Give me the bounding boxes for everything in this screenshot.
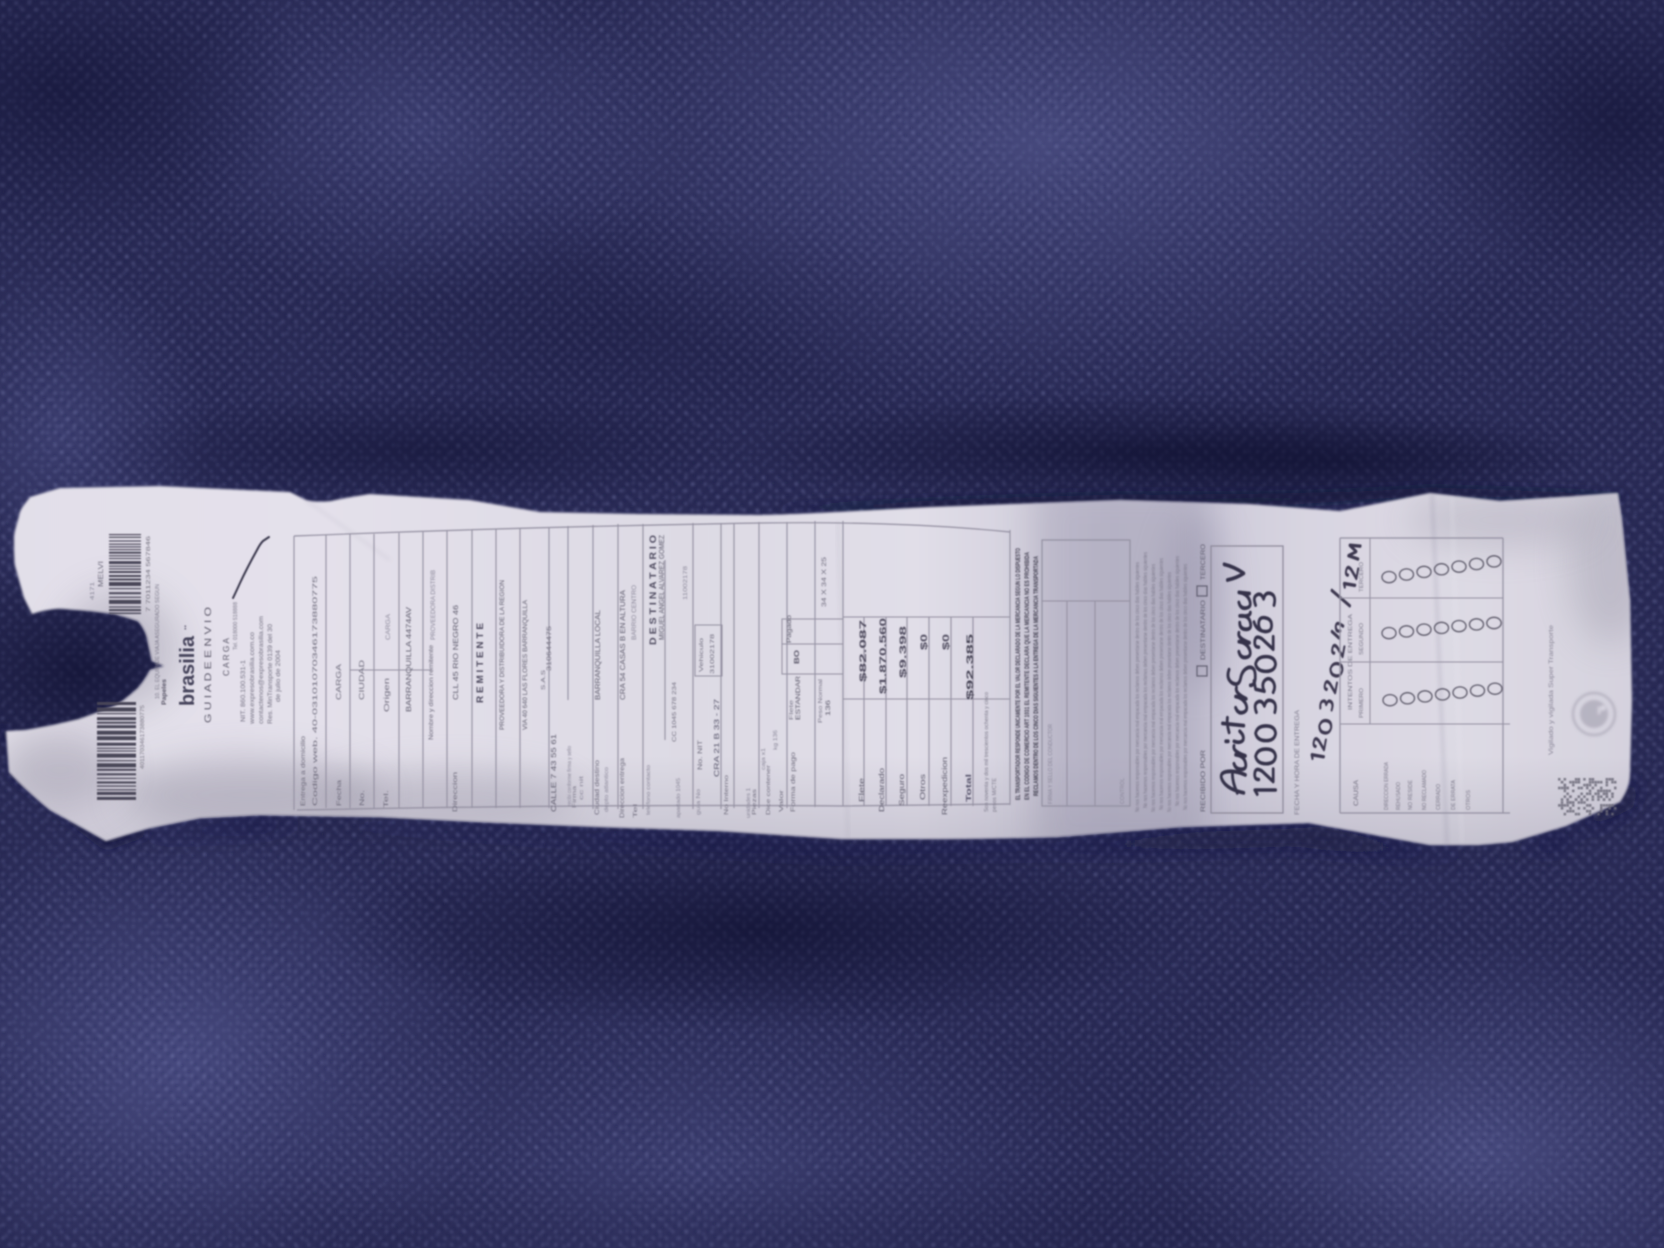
svg-text:Tel: Tel bbox=[633, 804, 639, 818]
svg-text:Son noventa y dos mil trescien: Son noventa y dos mil trescientos ochent… bbox=[984, 692, 990, 812]
svg-text:BARRIO CENTRO: BARRIO CENTRO bbox=[632, 585, 638, 640]
svg-text:CALLE 7 43 55 61: CALLE 7 43 55 61 bbox=[551, 734, 558, 812]
svg-text:11002178: 11002178 bbox=[683, 566, 689, 600]
svg-text:apartado 1045: apartado 1045 bbox=[676, 778, 682, 818]
svg-text:Papeles: Papeles bbox=[161, 679, 168, 705]
svg-text:Piezas: Piezas bbox=[752, 789, 758, 815]
svg-text:NO RECLAMADO: NO RECLAMADO bbox=[1422, 770, 1428, 810]
svg-text:Flete: Flete bbox=[789, 700, 795, 720]
svg-text:Declarado: Declarado bbox=[879, 768, 886, 812]
svg-text:No nos hacemos responsables po: No nos hacemos responsables por mercanci… bbox=[1143, 552, 1149, 808]
svg-text:BARRANQUILLA LOCAL: BARRANQUILLA LOCAL bbox=[595, 610, 602, 700]
svg-text:No Interno: No Interno bbox=[724, 775, 730, 815]
svg-text:No nos hacemos responsables po: No nos hacemos responsables por mercanci… bbox=[1175, 556, 1181, 806]
svg-text:depto atlantico: depto atlantico bbox=[604, 767, 610, 812]
svg-text:136: 136 bbox=[826, 699, 832, 716]
svg-text:No nos hacemos responsables po: No nos hacemos responsables por mercanci… bbox=[1151, 564, 1157, 812]
svg-text:contactenos@expresobrasilia.co: contactenos@expresobrasilia.com bbox=[259, 616, 265, 724]
svg-text:Vigilado y vigilada Super Tran: Vigilado y vigilada Super Transporte bbox=[1549, 624, 1555, 755]
svg-text:Peso Normal: Peso Normal bbox=[818, 679, 824, 723]
svg-text:CAUSA: CAUSA bbox=[1354, 780, 1360, 806]
svg-text:MELVI: MELVI bbox=[98, 561, 105, 587]
svg-text:310644475: 310644475 bbox=[547, 625, 553, 671]
svg-text:$9.398: $9.398 bbox=[898, 626, 908, 678]
svg-text:Ciudad destino: Ciudad destino bbox=[595, 759, 601, 815]
svg-text:kg 136: kg 136 bbox=[773, 730, 779, 750]
svg-text:FIRMA Y SELLO DEL CONDUCTOR: FIRMA Y SELLO DEL CONDUCTOR bbox=[1048, 724, 1054, 804]
svg-text:Otros: Otros bbox=[920, 773, 927, 800]
svg-text:$0: $0 bbox=[919, 634, 929, 650]
svg-text:No nos hacemos responsables po: No nos hacemos responsables por mercanci… bbox=[1167, 572, 1173, 812]
svg-text:Codigo web. 40-031010703461738: Codigo web. 40-03101070346173880775 bbox=[312, 575, 319, 806]
svg-text:REHUSADO: REHUSADO bbox=[1396, 782, 1402, 810]
svg-text:CLL 45 RIO NEGRO 46: CLL 45 RIO NEGRO 46 bbox=[453, 605, 460, 700]
svg-text:R E M I T E N T E: R E M I T E N T E bbox=[475, 623, 485, 703]
svg-text:CARGA: CARGA bbox=[386, 614, 392, 640]
svg-text:de julio de 2004: de julio de 2004 bbox=[276, 649, 282, 702]
svg-text:Direccion: Direccion bbox=[453, 772, 459, 812]
svg-text:7 7011234 567846: 7 7011234 567846 bbox=[146, 536, 152, 612]
svg-text:brasilia: brasilia bbox=[177, 635, 199, 706]
svg-text:INTENTOS DE ENTREGA: INTENTOS DE ENTREGA bbox=[1348, 614, 1354, 710]
svg-text:www.expresobrasilia.com.co: www.expresobrasilia.com.co bbox=[250, 631, 256, 725]
svg-text:RECIBIDO POR: RECIBIDO POR bbox=[1200, 750, 1207, 812]
svg-text:CARGA: CARGA bbox=[336, 664, 343, 700]
svg-text:BARRANQUILLA 4474AV: BARRANQUILLA 4474AV bbox=[404, 607, 413, 712]
svg-text:No nos hacemos responsables po: No nos hacemos responsables por mercanci… bbox=[1135, 562, 1141, 812]
svg-text:$1.870.560: $1.870.560 bbox=[878, 618, 888, 694]
svg-text:No. NIT: No. NIT bbox=[698, 740, 704, 770]
svg-text:Res. MinTransporte 0139 del 30: Res. MinTransporte 0139 del 30 bbox=[268, 623, 274, 724]
svg-text:Total: Total bbox=[964, 774, 973, 802]
svg-text:401170346173880775: 401170346173880775 bbox=[140, 705, 146, 769]
svg-text:Pagado: Pagado bbox=[786, 615, 793, 643]
svg-text:PRIMERO: PRIMERO bbox=[1359, 688, 1365, 718]
svg-text:No nos hacemos responsables po: No nos hacemos responsables por mercanci… bbox=[1159, 558, 1165, 810]
svg-text:Seguro: Seguro bbox=[899, 774, 906, 806]
svg-text:ESTANDAR: ESTANDAR bbox=[796, 675, 802, 720]
svg-text:CRA 21 B 33 - 27: CRA 21 B 33 - 27 bbox=[712, 699, 721, 777]
svg-text:MIGUEL ANGEL ALVAREZ GOMEZ: MIGUEL ANGEL ALVAREZ GOMEZ bbox=[659, 534, 666, 640]
svg-text:No.: No. bbox=[360, 789, 366, 806]
svg-text:Dice contener: Dice contener bbox=[766, 765, 772, 815]
svg-text:Flete: Flete bbox=[859, 778, 866, 802]
svg-text:EN EL CODIGO DE COMERCIO ART 1: EN EL CODIGO DE COMERCIO ART 1031 EL REM… bbox=[1024, 552, 1031, 800]
svg-text:PROVEEDORA DISTRIB: PROVEEDORA DISTRIB bbox=[431, 570, 437, 640]
svg-text:pesos M/CTE: pesos M/CTE bbox=[992, 777, 998, 812]
svg-text:CONTROL: CONTROL bbox=[1120, 778, 1126, 804]
svg-text:VIA 40 640 LAS FLORES BARRANQU: VIA 40 640 LAS FLORES BARRANQUILLA bbox=[522, 599, 529, 730]
svg-text:Fecha: Fecha bbox=[337, 779, 343, 806]
svg-text:$0: $0 bbox=[941, 634, 951, 650]
svg-text:No nos hacemos responsables po: No nos hacemos responsables por mercanci… bbox=[1183, 564, 1189, 810]
svg-text:caja x1: caja x1 bbox=[761, 748, 767, 770]
svg-text:S.A.S: S.A.S bbox=[541, 670, 547, 690]
svg-text:34 X 34 X 25: 34 X 34 X 25 bbox=[822, 556, 828, 607]
svg-text:DIRECCION ERRADA: DIRECCION ERRADA bbox=[1384, 761, 1390, 810]
svg-text:$82.087: $82.087 bbox=[858, 620, 868, 682]
svg-text:RECLAMOS DENTRO DE LOS CINCO D: RECLAMOS DENTRO DE LOS CINCO DIAS SIGUIE… bbox=[1033, 556, 1040, 796]
svg-text:..: .. bbox=[178, 625, 188, 630]
svg-text:Origen: Origen bbox=[384, 678, 391, 712]
svg-text:NO RESIDE: NO RESIDE bbox=[1408, 779, 1414, 810]
svg-text:Tel. 018000 518888: Tel. 018000 518888 bbox=[233, 602, 239, 650]
svg-text:Reexpedicion: Reexpedicion bbox=[942, 757, 949, 815]
svg-text:CC 1045 678 234: CC 1045 678 234 bbox=[672, 682, 678, 742]
svg-text:Entrega a domicilio: Entrega a domicilio bbox=[301, 735, 307, 806]
svg-text:unidades 1: unidades 1 bbox=[746, 788, 752, 818]
svg-text:Nombre y direccion remitente: Nombre y direccion remitente bbox=[429, 644, 435, 740]
svg-text:guia No: guia No bbox=[696, 789, 702, 815]
svg-text:EL TRANSPORTADOR RESPONDE UNIC: EL TRANSPORTADOR RESPONDE UNICAMENTE POR… bbox=[1015, 548, 1022, 800]
svg-text:Vehiculo: Vehiculo bbox=[699, 638, 705, 672]
svg-text:D E S T I N A T A R I O: D E S T I N A T A R I O bbox=[648, 535, 658, 645]
svg-text:SEGUNDO: SEGUNDO bbox=[1359, 623, 1365, 655]
svg-text:Forma de pago: Forma de pago bbox=[791, 751, 797, 812]
svg-text:G U I A D E E N V I O: G U I A D E E N V I O bbox=[203, 607, 213, 723]
svg-text:CERRADO: CERRADO bbox=[1436, 784, 1442, 810]
svg-text:telefono contacto: telefono contacto bbox=[646, 765, 652, 815]
svg-text:recibi conforme firma y sello: recibi conforme firma y sello bbox=[567, 746, 573, 806]
svg-text:TERCERO: TERCERO bbox=[1200, 544, 1207, 580]
svg-text:TERCERO: TERCERO bbox=[1359, 562, 1365, 592]
svg-text:PROVEEDORA Y DISTRIBUIDORA DE: PROVEEDORA Y DISTRIBUIDORA DE LA REGION bbox=[499, 580, 506, 730]
svg-text:cc nit: cc nit bbox=[579, 775, 585, 800]
svg-text:4171: 4171 bbox=[90, 582, 96, 600]
svg-text:BO: BO bbox=[794, 649, 801, 664]
svg-text:Direccion entrega: Direccion entrega bbox=[620, 757, 626, 818]
svg-text:Tel.: Tel. bbox=[384, 789, 390, 808]
svg-text:C A R G A: C A R G A bbox=[222, 637, 231, 676]
svg-text:Valor: Valor bbox=[779, 790, 785, 812]
svg-text:CRA 54 CASAS B EN ALTURA: CRA 54 CASAS B EN ALTURA bbox=[620, 590, 627, 700]
svg-text:$92.385: $92.385 bbox=[965, 633, 976, 700]
svg-text:31002178: 31002178 bbox=[710, 634, 716, 674]
svg-text:FECHA Y HORA DE ENTREGA: FECHA Y HORA DE ENTREGA bbox=[1295, 710, 1301, 815]
svg-text:CIUDAD: CIUDAD bbox=[359, 660, 366, 700]
svg-text:OTROS: OTROS bbox=[1466, 789, 1472, 810]
svg-text:DE ERRATA: DE ERRATA bbox=[1451, 779, 1457, 810]
svg-text:NIT. 860.100.531-1: NIT. 860.100.531-1 bbox=[241, 659, 247, 722]
svg-text:DESTINATARIO: DESTINATARIO bbox=[1200, 600, 1207, 660]
